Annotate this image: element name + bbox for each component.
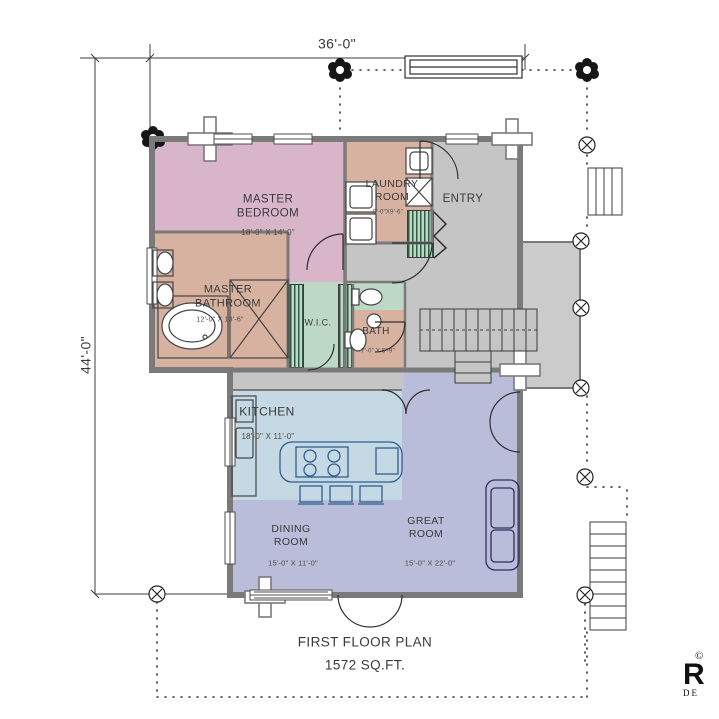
exterior-stairs-bottom-icon	[590, 522, 626, 630]
size-great-room: 15'-0" X 22'-0"	[405, 558, 455, 567]
label-laundry: LAUNDRY ROOM	[366, 178, 419, 204]
designer-logo: © R DE	[683, 650, 719, 698]
logo-letter: R	[683, 662, 719, 688]
size-kitchen: 18'-0" X 11'-0"	[242, 432, 295, 442]
size-bath: 7'-0" X 5'-9"	[361, 348, 395, 356]
label-wic: W.I.C.	[305, 317, 332, 328]
label-bath: BATH	[362, 326, 390, 339]
toilet-icon	[345, 289, 382, 351]
sofa-icon	[486, 480, 519, 570]
label-master-bathroom: MASTER BATHROOM	[195, 283, 261, 311]
size-master-bedroom: 18'-0" X 14'-0"	[241, 228, 295, 238]
plan-title: FIRST FLOOR PLAN	[298, 635, 432, 652]
bifold-door-icon	[434, 212, 446, 258]
door-swing-icon	[307, 141, 520, 627]
label-master-bedroom: MASTER BEDROOM	[237, 193, 299, 222]
label-kitchen: KITCHEN	[239, 405, 294, 420]
plan-linework	[0, 0, 719, 719]
dimension-height-label: 44'-0"	[77, 336, 95, 374]
size-master-bathroom: 12'-0" X 13'-6"	[196, 317, 243, 326]
label-dining: DINING ROOM	[271, 523, 310, 549]
label-entry: ENTRY	[443, 192, 484, 206]
size-dining: 15'-0" X 11'-0"	[268, 558, 318, 567]
plan-area: 1572 SQ.FT.	[325, 658, 405, 675]
exterior-stairs-top-icon	[588, 168, 622, 215]
label-great-room: GREAT ROOM	[407, 515, 444, 541]
floor-plan-canvas: 36'-0" 44'-0" MASTER BEDROOM 18'-0" X 14…	[0, 0, 719, 719]
size-laundry: 9'-0"X9'-6"	[373, 209, 403, 217]
beam-icon	[405, 56, 522, 78]
dimension-width-label: 36'-0"	[318, 35, 356, 53]
kitchen-island-icon	[280, 442, 402, 504]
